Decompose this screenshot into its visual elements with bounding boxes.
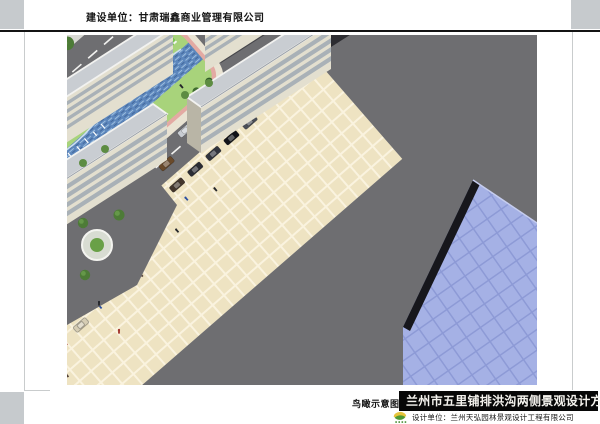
frame-corner-bottom-left: [0, 392, 24, 424]
presentation-sheet: 建设单位：甘肃瑞鑫商业管理有限公司: [0, 0, 600, 424]
designer-label: 设计单位：兰州天弘园林景观设计工程有限公司: [412, 412, 574, 423]
designer-row: 设计单位：兰州天弘园林景观设计工程有限公司: [392, 410, 574, 424]
project-title-bar: 兰州市五里铺排洪沟两侧景观设计方案: [399, 391, 598, 411]
client-label: 建设单位：甘肃瑞鑫商业管理有限公司: [86, 9, 265, 24]
frame-tick-bottom-left: [24, 390, 50, 391]
view-label: 鸟瞰示意图: [352, 397, 400, 410]
frame-hairline-right: [572, 32, 573, 390]
design-firm-logo-icon: [392, 410, 408, 424]
frame-corner-top-right: [571, 0, 600, 29]
frame-hairline-left: [24, 32, 25, 390]
birdseye-rendering: [67, 35, 537, 385]
frame-top-rule: [0, 30, 600, 32]
rendering-svg: [67, 35, 537, 385]
frame-corner-top-left: [0, 0, 24, 29]
